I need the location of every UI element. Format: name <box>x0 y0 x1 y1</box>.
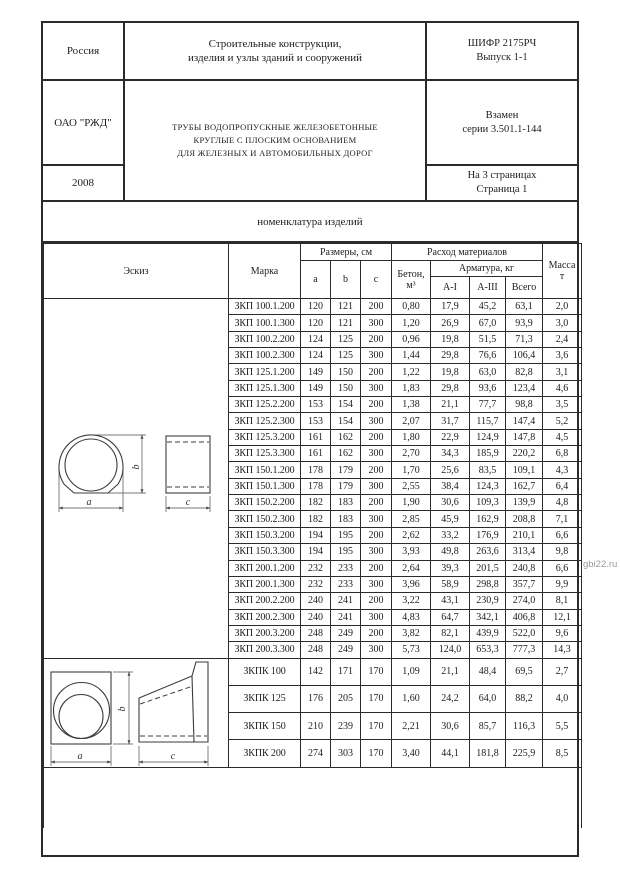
cell-a: 274 <box>301 740 331 767</box>
cell-c: 300 <box>361 478 392 494</box>
cell-b: 154 <box>331 397 361 413</box>
cell-rebar-aiii: 45,2 <box>470 299 506 315</box>
cell-mark: ЗКП 125.3.300 <box>229 446 301 462</box>
cell-a: 149 <box>301 380 331 396</box>
cell-rebar-aiii: 298,8 <box>470 576 506 592</box>
cell-rebar-total: 220,2 <box>506 446 543 462</box>
replaces-cell: Взамен серии 3.501.1-144 <box>427 81 577 166</box>
footer-strip-body <box>44 767 582 828</box>
cell-rebar-total: 82,8 <box>506 364 543 380</box>
cell-concrete: 2,64 <box>392 560 431 576</box>
cell-rebar-ai: 19,8 <box>431 364 470 380</box>
cell-concrete: 3,96 <box>392 576 431 592</box>
cell-c: 200 <box>361 527 392 543</box>
cell-mark: ЗКП 200.2.200 <box>229 593 301 609</box>
cell-rebar-aiii: 176,9 <box>470 527 506 543</box>
dim-label-c: c <box>171 751 176 762</box>
cell-c: 200 <box>361 462 392 478</box>
cell-mass: 9,9 <box>543 576 582 592</box>
section-title-label: номенклатура изделий <box>257 216 362 228</box>
cell-mark: ЗКП 100.2.300 <box>229 348 301 364</box>
cell-a: 182 <box>301 511 331 527</box>
cell-c: 300 <box>361 544 392 560</box>
zkp-rows: a b c ЗКП 100.1.2001201212000,8017,945,2… <box>44 299 582 659</box>
cell-rebar-aiii: 230,9 <box>470 593 506 609</box>
sketch-zkp-cell: a b c <box>44 299 229 659</box>
cell-b: 154 <box>331 413 361 429</box>
cell-mass: 2,7 <box>543 658 582 685</box>
cell-rebar-total: 88,2 <box>506 685 543 712</box>
cell-rebar-aiii: 63,0 <box>470 364 506 380</box>
cell-rebar-total: 116,3 <box>506 713 543 740</box>
cell-mark: ЗКП 100.1.200 <box>229 299 301 315</box>
cell-concrete: 2,07 <box>392 413 431 429</box>
cell-mass: 3,0 <box>543 315 582 331</box>
cell-c: 300 <box>361 511 392 527</box>
header-dim-a: a <box>301 261 331 299</box>
cipher-line2: Выпуск 1-1 <box>476 51 527 65</box>
cell-c: 200 <box>361 560 392 576</box>
cell-rebar-total: 274,0 <box>506 593 543 609</box>
cell-rebar-aiii: 439,9 <box>470 625 506 641</box>
header-dim-b: b <box>331 261 361 299</box>
cell-mark: ЗКП 150.2.300 <box>229 511 301 527</box>
dim-label-a: a <box>78 751 83 762</box>
cell-rebar-ai: 21,1 <box>431 397 470 413</box>
document-title-cell: ТРУБЫ ВОДОПРОПУСКНЫЕ ЖЕЛЕЗОБЕТОННЫЕ КРУГ… <box>125 81 427 200</box>
cell-concrete: 2,85 <box>392 511 431 527</box>
cell-a: 182 <box>301 495 331 511</box>
cell-rebar-total: 208,8 <box>506 511 543 527</box>
cell-rebar-aiii: 181,8 <box>470 740 506 767</box>
cell-b: 233 <box>331 576 361 592</box>
cell-c: 170 <box>361 658 392 685</box>
cell-mark: ЗКП 150.3.200 <box>229 527 301 543</box>
cell-concrete: 1,44 <box>392 348 431 364</box>
cell-rebar-total: 522,0 <box>506 625 543 641</box>
dim-label-b: b <box>131 465 142 470</box>
cell-rebar-ai: 45,9 <box>431 511 470 527</box>
cell-rebar-total: 109,1 <box>506 462 543 478</box>
cell-rebar-total: 106,4 <box>506 348 543 364</box>
cell-b: 121 <box>331 299 361 315</box>
cell-a: 240 <box>301 593 331 609</box>
cell-a: 153 <box>301 397 331 413</box>
cell-a: 240 <box>301 609 331 625</box>
cell-c: 170 <box>361 685 392 712</box>
cell-rebar-aiii: 77,7 <box>470 397 506 413</box>
cell-rebar-ai: 22,9 <box>431 429 470 445</box>
cell-a: 124 <box>301 348 331 364</box>
cell-rebar-ai: 64,7 <box>431 609 470 625</box>
cell-rebar-ai: 25,6 <box>431 462 470 478</box>
cell-rebar-aiii: 51,5 <box>470 331 506 347</box>
cell-rebar-total: 98,8 <box>506 397 543 413</box>
cell-mass: 9,8 <box>543 544 582 560</box>
cell-mass: 6,6 <box>543 527 582 543</box>
cell-rebar-total: 63,1 <box>506 299 543 315</box>
cell-b: 205 <box>331 685 361 712</box>
cell-c: 200 <box>361 495 392 511</box>
cell-mark: ЗКПК 100 <box>229 658 301 685</box>
cell-b: 150 <box>331 380 361 396</box>
cell-c: 300 <box>361 315 392 331</box>
cell-b: 162 <box>331 429 361 445</box>
title-block: Россия Строительные конструкции, изделия… <box>43 23 577 202</box>
cell-a: 194 <box>301 527 331 543</box>
cell-rebar-total: 69,5 <box>506 658 543 685</box>
cell-rebar-total: 71,3 <box>506 331 543 347</box>
cell-rebar-total: 225,9 <box>506 740 543 767</box>
cell-a: 120 <box>301 315 331 331</box>
header-mark: Марка <box>229 244 301 299</box>
cell-concrete: 3,93 <box>392 544 431 560</box>
cell-a: 248 <box>301 642 331 658</box>
header-rebar-total: Всего <box>506 277 543 299</box>
cell-a: 149 <box>301 364 331 380</box>
cell-a: 142 <box>301 658 331 685</box>
cell-rebar-ai: 34,3 <box>431 446 470 462</box>
cell-a: 178 <box>301 478 331 494</box>
cell-c: 300 <box>361 380 392 396</box>
cell-mass: 6,6 <box>543 560 582 576</box>
cell-rebar-aiii: 93,6 <box>470 380 506 396</box>
cell-rebar-aiii: 115,7 <box>470 413 506 429</box>
cell-mark: ЗКПК 125 <box>229 685 301 712</box>
cell-rebar-ai: 44,1 <box>431 740 470 767</box>
country-cell: Россия <box>43 23 125 81</box>
cell-rebar-aiii: 109,3 <box>470 495 506 511</box>
cell-rebar-aiii: 342,1 <box>470 609 506 625</box>
cell-mark: ЗКП 150.1.300 <box>229 478 301 494</box>
cell-concrete: 1,70 <box>392 462 431 478</box>
pages-line2: Страница 1 <box>477 183 528 197</box>
cell-concrete: 1,60 <box>392 685 431 712</box>
cell-rebar-total: 406,8 <box>506 609 543 625</box>
cell-a: 120 <box>301 299 331 315</box>
cell-mass: 4,0 <box>543 685 582 712</box>
header-rebar-group: Арматура, кг <box>431 261 543 277</box>
cell-concrete: 4,83 <box>392 609 431 625</box>
cell-concrete: 2,21 <box>392 713 431 740</box>
cell-rebar-aiii: 85,7 <box>470 713 506 740</box>
header-concrete: Бетон, м³ <box>392 261 431 299</box>
cell-mass: 6,8 <box>543 446 582 462</box>
cell-concrete: 0,96 <box>392 331 431 347</box>
organization-label: ОАО "РЖД" <box>54 116 112 130</box>
cell-b: 241 <box>331 593 361 609</box>
cell-rebar-total: 147,4 <box>506 413 543 429</box>
cell-a: 161 <box>301 429 331 445</box>
cell-concrete: 1,09 <box>392 658 431 685</box>
cell-mass: 7,1 <box>543 511 582 527</box>
cell-mass: 8,1 <box>543 593 582 609</box>
cell-rebar-ai: 17,9 <box>431 299 470 315</box>
empty-footer-row <box>44 767 582 828</box>
cell-b: 150 <box>331 364 361 380</box>
cell-a: 178 <box>301 462 331 478</box>
cell-rebar-aiii: 263,6 <box>470 544 506 560</box>
cell-mass: 2,0 <box>543 299 582 315</box>
section-title: номенклатура изделий <box>43 202 577 243</box>
cipher-line1: ШИФР 2175РЧ <box>468 37 537 51</box>
cell-concrete: 2,62 <box>392 527 431 543</box>
cell-mark: ЗКП 125.2.300 <box>229 413 301 429</box>
cell-concrete: 3,22 <box>392 593 431 609</box>
cell-c: 200 <box>361 331 392 347</box>
cell-rebar-total: 240,8 <box>506 560 543 576</box>
cell-concrete: 1,22 <box>392 364 431 380</box>
header-rebar-ai: A-I <box>431 277 470 299</box>
cell-b: 195 <box>331 527 361 543</box>
cell-a: 161 <box>301 446 331 462</box>
cell-rebar-ai: 58,9 <box>431 576 470 592</box>
cell-c: 300 <box>361 446 392 462</box>
cell-mass: 12,1 <box>543 609 582 625</box>
cell-b: 239 <box>331 713 361 740</box>
cell-rebar-aiii: 48,4 <box>470 658 506 685</box>
cell-mass: 8,5 <box>543 740 582 767</box>
document-frame: Россия Строительные конструкции, изделия… <box>41 21 579 857</box>
cell-a: 248 <box>301 625 331 641</box>
dim-label-c: c <box>186 497 191 508</box>
subject-line1: Строительные конструкции, <box>209 37 342 51</box>
pages-cell: На 3 страницах Страница 1 <box>427 166 577 200</box>
cell-c: 200 <box>361 593 392 609</box>
cell-rebar-total: 210,1 <box>506 527 543 543</box>
cell-mark: ЗКПК 200 <box>229 740 301 767</box>
table-header: Эскиз Марка Размеры, см Расход материало… <box>44 244 582 299</box>
cell-b: 249 <box>331 642 361 658</box>
subject-line2: изделия и узлы зданий и сооружений <box>188 51 362 65</box>
cell-b: 241 <box>331 609 361 625</box>
pages-line1: На 3 страницах <box>468 169 537 183</box>
cell-mass: 4,6 <box>543 380 582 396</box>
cell-mark: ЗКПК 150 <box>229 713 301 740</box>
cell-rebar-aiii: 67,0 <box>470 315 506 331</box>
cell-mark: ЗКП 200.1.200 <box>229 560 301 576</box>
header-materials-group: Расход материалов <box>392 244 543 261</box>
cell-rebar-ai: 30,6 <box>431 713 470 740</box>
cell-concrete: 0,80 <box>392 299 431 315</box>
document-title-line2: КРУГЛЫЕ С ПЛОСКИМ ОСНОВАНИЕМ <box>194 134 357 147</box>
cell-rebar-total: 313,4 <box>506 544 543 560</box>
dim-label-a: a <box>87 497 92 508</box>
cipher-cell: ШИФР 2175РЧ Выпуск 1-1 <box>427 23 577 81</box>
cell-concrete: 2,70 <box>392 446 431 462</box>
cell-rebar-ai: 26,9 <box>431 315 470 331</box>
header-sketch: Эскиз <box>44 244 229 299</box>
cell-rebar-ai: 31,7 <box>431 413 470 429</box>
cell-concrete: 1,90 <box>392 495 431 511</box>
cell-concrete: 1,20 <box>392 315 431 331</box>
cell-mark: ЗКП 100.1.300 <box>229 315 301 331</box>
header-rebar-aiii: A-III <box>470 277 506 299</box>
cell-b: 125 <box>331 331 361 347</box>
cell-rebar-ai: 30,6 <box>431 495 470 511</box>
zkpk-rows: a b c ЗКПК 1001421711701,0921,148,469,52… <box>44 658 582 767</box>
document-title-line3: ДЛЯ ЖЕЛЕЗНЫХ И АВТОМОБИЛЬНЫХ ДОРОГ <box>177 147 373 160</box>
cell-rebar-ai: 29,8 <box>431 380 470 396</box>
cell-rebar-total: 777,3 <box>506 642 543 658</box>
cell-a: 232 <box>301 560 331 576</box>
cell-rebar-ai: 29,8 <box>431 348 470 364</box>
cell-c: 300 <box>361 609 392 625</box>
cell-a: 124 <box>301 331 331 347</box>
header-dim-c: c <box>361 261 392 299</box>
cell-mass: 5,2 <box>543 413 582 429</box>
cell-mass: 4,8 <box>543 495 582 511</box>
cell-rebar-ai: 21,1 <box>431 658 470 685</box>
replaces-line2: серии 3.501.1-144 <box>462 123 541 137</box>
cell-mass: 6,4 <box>543 478 582 494</box>
cell-mass: 3,1 <box>543 364 582 380</box>
cell-rebar-total: 93,9 <box>506 315 543 331</box>
cell-rebar-aiii: 185,9 <box>470 446 506 462</box>
subject-cell: Строительные конструкции, изделия и узлы… <box>125 23 427 81</box>
sketch-zkpk-cell: a b c <box>44 658 229 767</box>
cell-rebar-ai: 33,2 <box>431 527 470 543</box>
cell-mark: ЗКП 150.2.200 <box>229 495 301 511</box>
replaces-line1: Взамен <box>486 109 519 123</box>
cell-b: 125 <box>331 348 361 364</box>
cell-concrete: 5,73 <box>392 642 431 658</box>
cell-rebar-ai: 19,8 <box>431 331 470 347</box>
scanned-document-page: { "colors": { "line": "#2b2b2b", "waterm… <box>0 0 620 877</box>
cell-a: 176 <box>301 685 331 712</box>
cell-mass: 9,6 <box>543 625 582 641</box>
cell-rebar-aiii: 64,0 <box>470 685 506 712</box>
cell-rebar-aiii: 162,9 <box>470 511 506 527</box>
country-label: Россия <box>67 44 99 58</box>
cell-mark: ЗКП 125.3.200 <box>229 429 301 445</box>
cell-b: 183 <box>331 495 361 511</box>
cell-rebar-total: 357,7 <box>506 576 543 592</box>
cell-rebar-aiii: 124,9 <box>470 429 506 445</box>
cell-c: 200 <box>361 364 392 380</box>
cell-mass: 4,5 <box>543 429 582 445</box>
cell-rebar-total: 139,9 <box>506 495 543 511</box>
cell-c: 300 <box>361 413 392 429</box>
cell-rebar-total: 123,4 <box>506 380 543 396</box>
nomenclature-table: Эскиз Марка Размеры, см Расход материало… <box>43 243 582 828</box>
cell-b: 233 <box>331 560 361 576</box>
cell-mark: ЗКП 200.2.300 <box>229 609 301 625</box>
cell-rebar-total: 147,8 <box>506 429 543 445</box>
cell-mark: ЗКП 125.1.200 <box>229 364 301 380</box>
organization-cell: ОАО "РЖД" <box>43 81 125 166</box>
cell-mark: ЗКП 200.3.300 <box>229 642 301 658</box>
cell-a: 194 <box>301 544 331 560</box>
cell-rebar-aiii: 124,3 <box>470 478 506 494</box>
cell-concrete: 1,38 <box>392 397 431 413</box>
cell-a: 232 <box>301 576 331 592</box>
cell-b: 303 <box>331 740 361 767</box>
cell-rebar-total: 162,7 <box>506 478 543 494</box>
year-cell: 2008 <box>43 166 125 200</box>
cell-rebar-ai: 24,2 <box>431 685 470 712</box>
cell-concrete: 1,83 <box>392 380 431 396</box>
cell-mass: 14,3 <box>543 642 582 658</box>
cell-mark: ЗКП 100.2.200 <box>229 331 301 347</box>
cell-mark: ЗКП 125.2.200 <box>229 397 301 413</box>
zkp-pipe-sketch: a b c <box>46 434 226 522</box>
cell-b: 171 <box>331 658 361 685</box>
table-row: a b c ЗКП 100.1.2001201212000,8017,945,2… <box>44 299 582 315</box>
empty-footer-cell <box>44 767 582 828</box>
cell-concrete: 2,55 <box>392 478 431 494</box>
cell-mass: 2,4 <box>543 331 582 347</box>
cell-b: 179 <box>331 478 361 494</box>
cell-rebar-aiii: 83,5 <box>470 462 506 478</box>
cell-c: 200 <box>361 397 392 413</box>
cell-c: 200 <box>361 299 392 315</box>
cell-concrete: 3,40 <box>392 740 431 767</box>
cell-b: 121 <box>331 315 361 331</box>
cell-b: 195 <box>331 544 361 560</box>
cell-mark: ЗКП 150.1.200 <box>229 462 301 478</box>
header-mass: Масса т <box>543 244 582 299</box>
cell-mass: 3,6 <box>543 348 582 364</box>
cell-rebar-aiii: 201,5 <box>470 560 506 576</box>
cell-c: 300 <box>361 642 392 658</box>
table-row: a b c ЗКПК 1001421711701,0921,148,469,52… <box>44 658 582 685</box>
document-title-line1: ТРУБЫ ВОДОПРОПУСКНЫЕ ЖЕЛЕЗОБЕТОННЫЕ <box>172 121 378 134</box>
header-dimensions-group: Размеры, см <box>301 244 392 261</box>
cell-b: 179 <box>331 462 361 478</box>
cell-rebar-ai: 39,3 <box>431 560 470 576</box>
cell-c: 200 <box>361 429 392 445</box>
cell-c: 300 <box>361 348 392 364</box>
year-label: 2008 <box>72 176 94 190</box>
cell-c: 170 <box>361 713 392 740</box>
cell-rebar-ai: 38,4 <box>431 478 470 494</box>
cell-concrete: 1,80 <box>392 429 431 445</box>
cell-mass: 3,5 <box>543 397 582 413</box>
cell-c: 200 <box>361 625 392 641</box>
cell-c: 170 <box>361 740 392 767</box>
cell-b: 249 <box>331 625 361 641</box>
cell-rebar-aiii: 653,3 <box>470 642 506 658</box>
cell-rebar-ai: 49,8 <box>431 544 470 560</box>
cell-a: 153 <box>301 413 331 429</box>
cell-b: 183 <box>331 511 361 527</box>
cell-c: 300 <box>361 576 392 592</box>
cell-rebar-aiii: 76,6 <box>470 348 506 364</box>
zkpk-end-link-sketch: a b c <box>46 659 226 767</box>
dim-label-b: b <box>117 706 128 711</box>
cell-rebar-ai: 124,0 <box>431 642 470 658</box>
cell-rebar-ai: 82,1 <box>431 625 470 641</box>
cell-mark: ЗКП 125.1.300 <box>229 380 301 396</box>
cell-mark: ЗКП 200.1.300 <box>229 576 301 592</box>
cell-rebar-ai: 43,1 <box>431 593 470 609</box>
cell-b: 162 <box>331 446 361 462</box>
cell-a: 210 <box>301 713 331 740</box>
cell-mass: 4,3 <box>543 462 582 478</box>
cell-mark: ЗКП 150.3.300 <box>229 544 301 560</box>
cell-mass: 5,5 <box>543 713 582 740</box>
cell-concrete: 3,82 <box>392 625 431 641</box>
watermark: gbi22.ru <box>583 559 617 570</box>
cell-mark: ЗКП 200.3.200 <box>229 625 301 641</box>
